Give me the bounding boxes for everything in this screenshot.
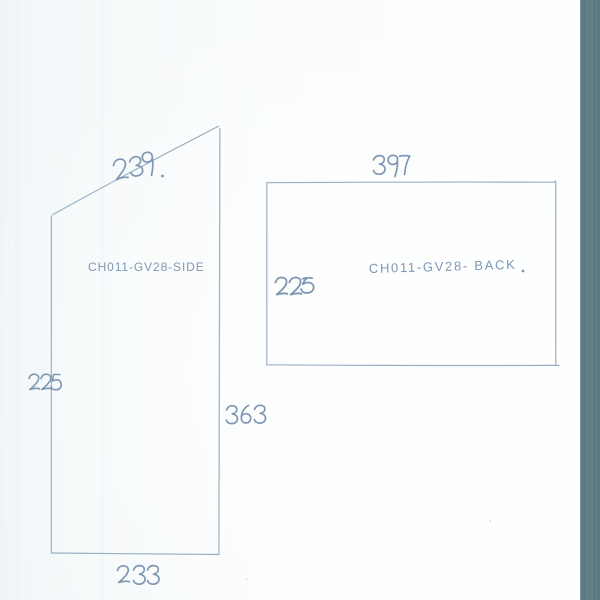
svg-text:CH011-GV28-SIDE: CH011-GV28-SIDE bbox=[88, 260, 205, 274]
